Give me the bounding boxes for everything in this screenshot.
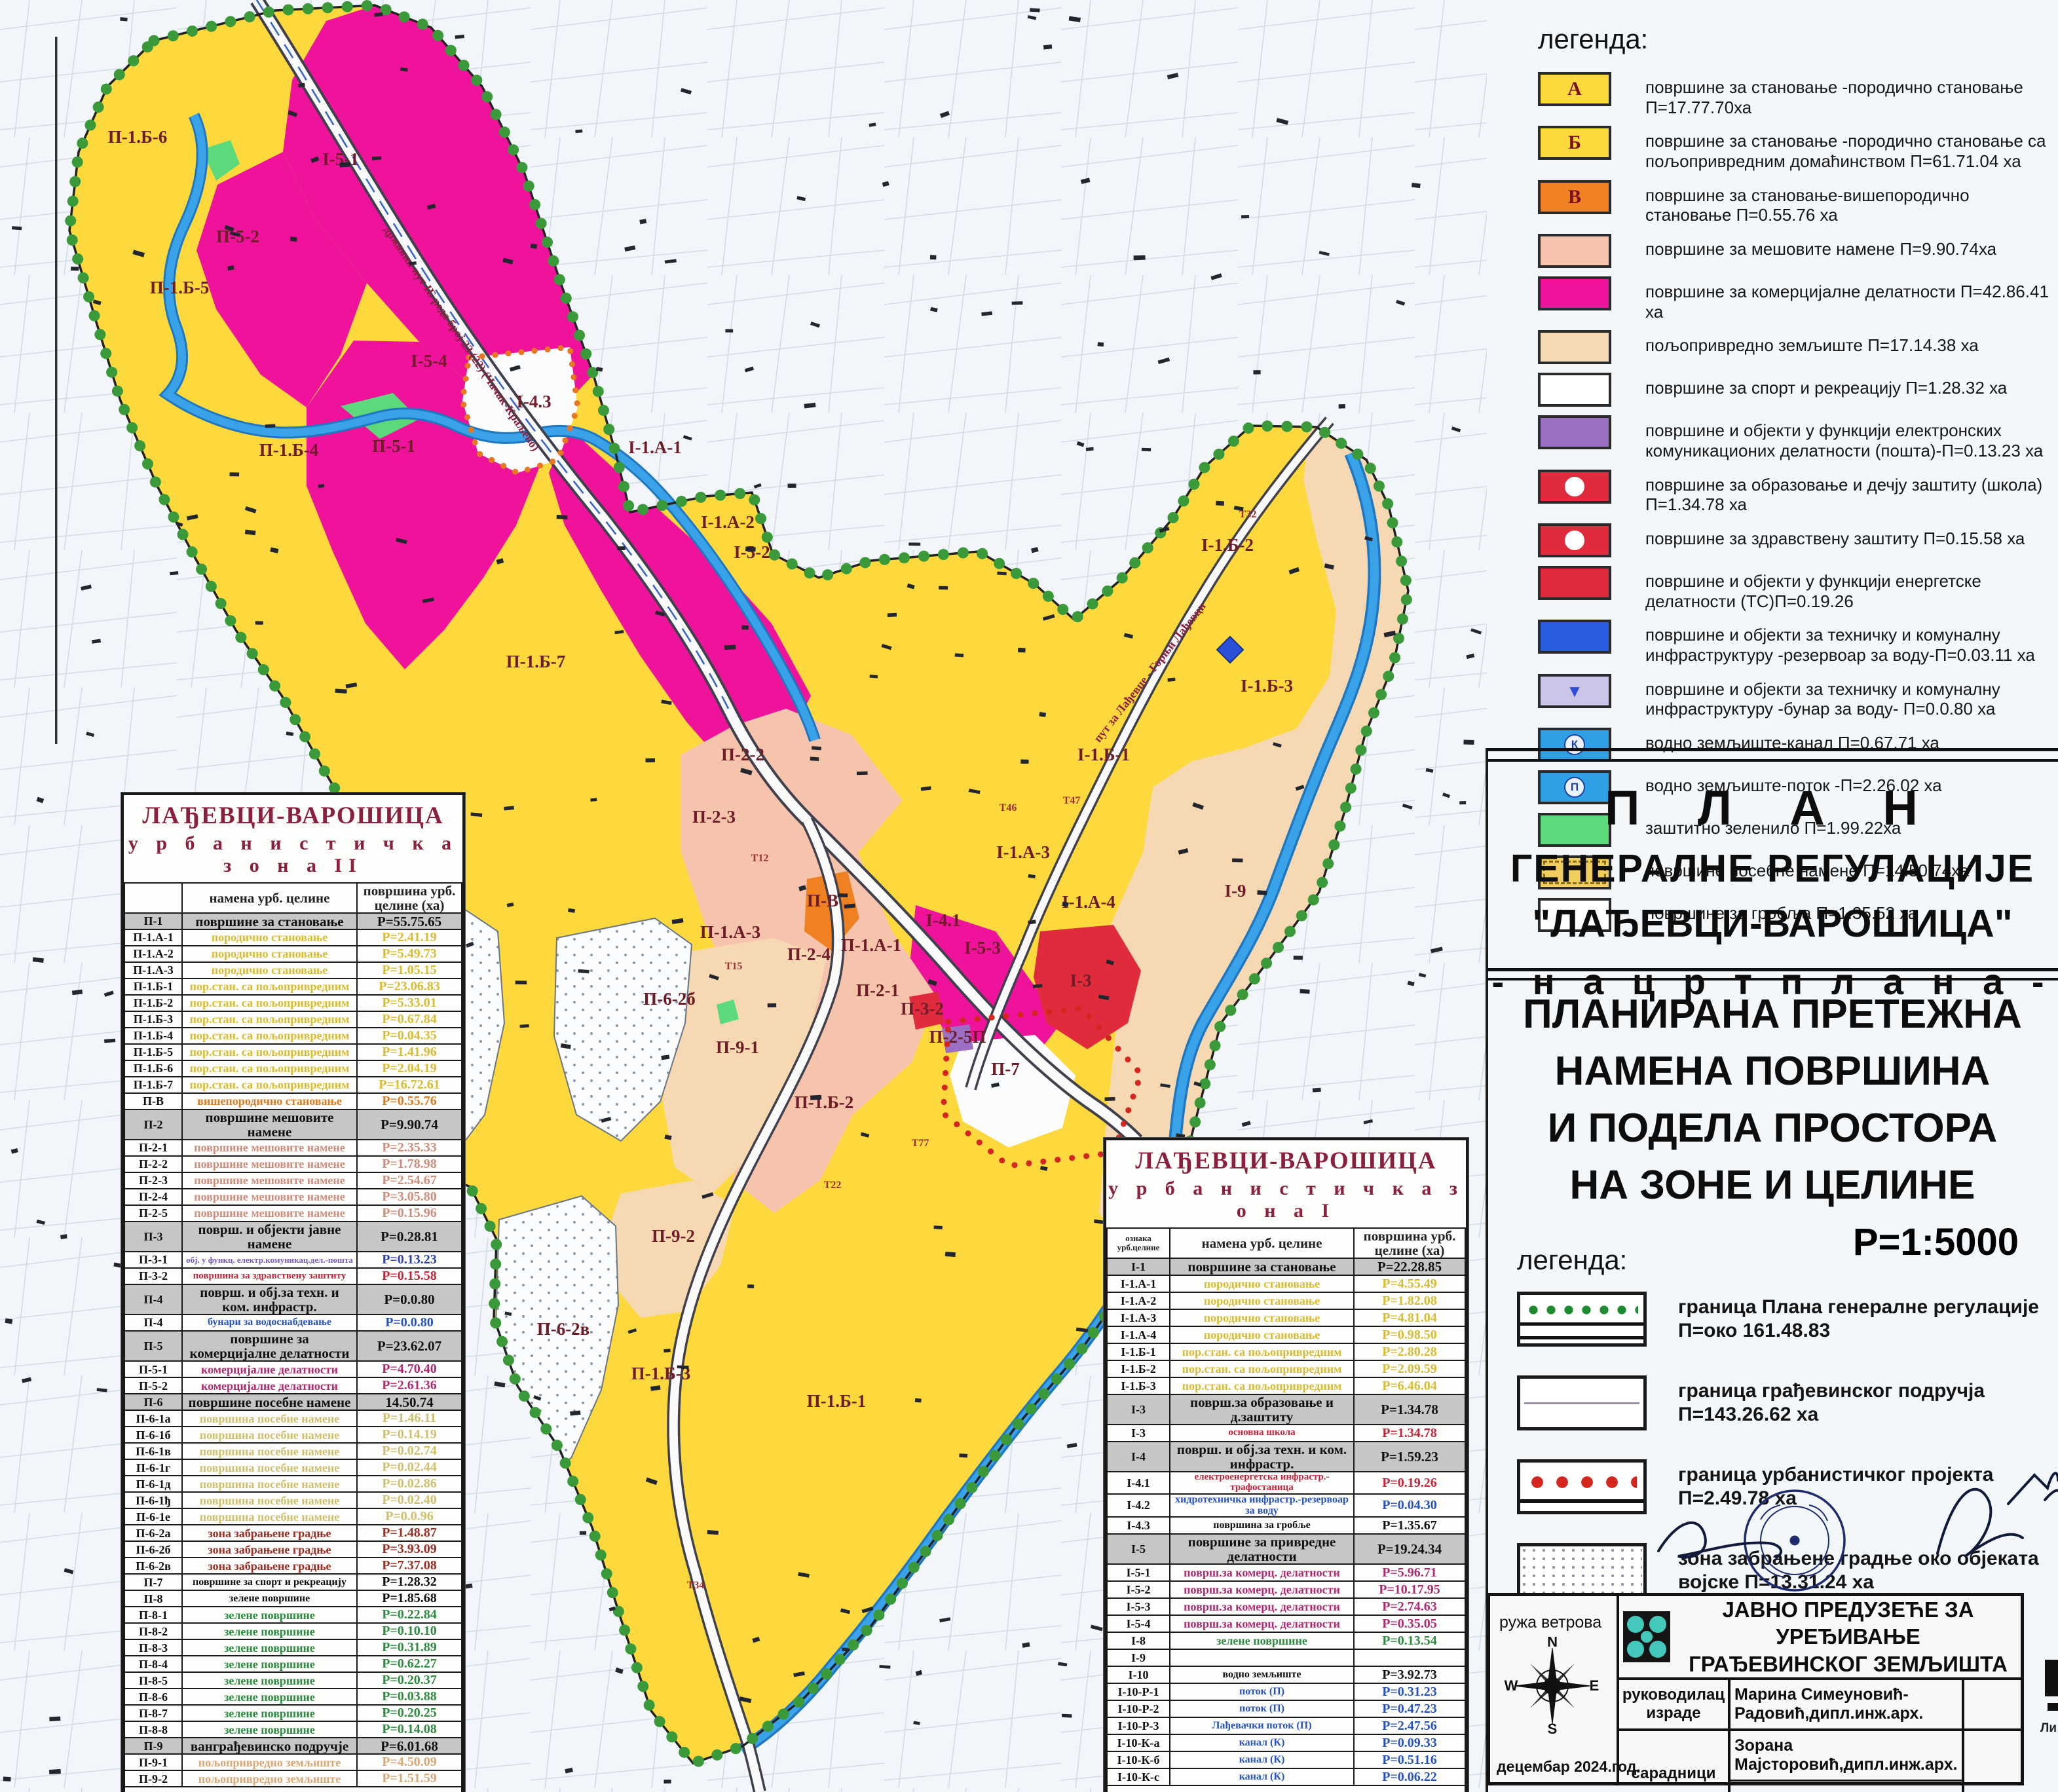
legend1-swatch: [1538, 373, 1611, 407]
building-mark: [3, 1777, 11, 1782]
subtitle-line: НА ЗОНЕ И ЦЕЛИНЕ: [1487, 1162, 2058, 1208]
zone-label-П-6-2б: П-6-2б: [643, 989, 695, 1009]
cell-zone-name: поток (П): [1170, 1700, 1354, 1717]
table-row[interactable]: I-4површ. и обј.за техн. и ком. инфрастр…: [1107, 1442, 1465, 1472]
building-mark: [229, 472, 239, 476]
building-mark: [955, 653, 964, 657]
table-row[interactable]: П-1.А-2породично становањеР=5.49.73: [124, 946, 462, 962]
credits-block: ружа ветрова N E S W: [1487, 1593, 2024, 1785]
zone2-total-row: Р=113.00.66: [124, 1787, 462, 1792]
zone2-col-name: намена урб. целине: [182, 883, 357, 913]
table-row[interactable]: П-1.Б-4пор.стан. са пољопривреднимР=0.04…: [124, 1028, 462, 1044]
building-mark: [1104, 1097, 1115, 1101]
legend1-item[interactable]: површине за комерцијалне делатности П=42…: [1538, 276, 2049, 322]
legend1-item[interactable]: ▼површине и објекти за техничку и комуна…: [1538, 674, 2049, 719]
cell-zone-id: I-4.3: [1107, 1517, 1170, 1534]
table-row[interactable]: П-5-2комерцијалне делатностиР=2.61.36: [124, 1377, 462, 1394]
cell-zone-id: П-3: [124, 1222, 182, 1252]
cell-zone-name: пор.стан. са пољопривредним: [182, 1077, 357, 1093]
table-row[interactable]: I-1.Б-3пор.стан. са пољопривреднимР=6.46…: [1107, 1377, 1465, 1394]
plan-title: П Л А Н: [1487, 780, 2058, 836]
cell-zone-id: П-9-1: [124, 1754, 182, 1770]
subtitle-block: ПЛАНИРАНА ПРЕТЕЖНАНАМЕНА ПОВРШИНАИ ПОДЕЛ…: [1487, 968, 2058, 1269]
cell-zone-id: I-10: [1107, 1666, 1170, 1683]
table-row[interactable]: П-1.Б-3пор.стан. са пољопривреднимР=0.67…: [124, 1011, 462, 1028]
table-row[interactable]: П-6-1вповршина посебне наменеР=0.02.74: [124, 1443, 462, 1459]
building-mark: [959, 1453, 967, 1457]
table-row[interactable]: I-4.3површина за гробљеР=1.35.67: [1107, 1517, 1465, 1534]
table-row[interactable]: I-1.А-3породично становањеР=4.81.04: [1107, 1309, 1465, 1326]
cell-zone-name: водно земљиште: [1170, 1666, 1354, 1683]
zone-label-П-1.Б-5: П-1.Б-5: [150, 278, 210, 297]
zone-label-I-3: I-3: [1070, 971, 1092, 990]
building-mark: [49, 1769, 61, 1774]
cell-zone-name: комерцијалне делатности: [182, 1377, 357, 1394]
legend1-item[interactable]: површине за здравствену заштиту П=0.15.5…: [1538, 523, 2049, 557]
cell-zone-area: Р=0.09.33: [1354, 1734, 1465, 1751]
cell-zone-id: П-6-1ђ: [124, 1492, 182, 1508]
table-row[interactable]: П-8-7зелене површинеР=0.20.25: [124, 1705, 462, 1721]
zone2-total: Р=113.00.66: [124, 1787, 462, 1792]
table-row[interactable]: П-8-1зелене површинеР=0.22.84: [124, 1607, 462, 1623]
building-mark: [707, 1530, 719, 1535]
cell-zone-area: Р=0.14.19: [357, 1427, 462, 1443]
building-mark: [1142, 448, 1151, 451]
cell-zone-id: П-1.Б-4: [124, 1028, 182, 1044]
legend1-item-text: површине за образовање и дечју заштиту (…: [1645, 470, 2049, 515]
legend1-item-text: површине и објекти у функцији електронск…: [1645, 415, 2049, 460]
cell-zone-name: пор.стан. са пољопривредним: [182, 979, 357, 995]
building-mark: [1012, 301, 1023, 305]
building-mark: [1043, 45, 1052, 50]
building-mark: [939, 586, 948, 590]
cell-zone-id: П-3-1: [124, 1252, 182, 1268]
table-row[interactable]: П-4бунари за водоснабдевањеР=0.0.80: [124, 1315, 462, 1331]
building-mark: [1097, 342, 1104, 346]
cell-zone-name: површине посебне намене: [182, 1394, 357, 1410]
table-row[interactable]: I-5површине за привредне делатностиР=19.…: [1107, 1534, 1465, 1564]
building-mark: [747, 1284, 754, 1288]
cell-zone-area: Р=0.55.76: [357, 1093, 462, 1110]
table-row[interactable]: П-1.Б-5пор.стан. са пољопривреднимР=1.41…: [124, 1044, 462, 1060]
table-row[interactable]: I-1.Б-1пор.стан. са пољопривреднимР=2.80…: [1107, 1343, 1465, 1360]
cell-zone-area: Р=1.05.15: [357, 962, 462, 979]
cell-zone-name: површ.за комерц. делатности: [1170, 1598, 1354, 1615]
table-row[interactable]: П-2-1површине мешовите наменеР=2.35.33: [124, 1140, 462, 1156]
plan-title-3: "ЛАЂЕВЦИ-ВАРОШИЦА": [1487, 901, 2058, 946]
cell-zone-name: зелене површине: [182, 1672, 357, 1689]
cell-zone-area: Р=3.93.09: [357, 1541, 462, 1558]
table-row[interactable]: П-9-1пољопривредно земљиштеР=4.50.09: [124, 1754, 462, 1770]
cell-zone-name: пољопривредно земљиште: [182, 1754, 357, 1770]
cell-zone-area: Р=0.47.23: [1354, 1700, 1465, 1717]
company-name: ЈАВНО ПРЕДУЗЕЋЕ ЗА УРЕЂИВАЊЕ ГРАЂЕВИНСКО…: [1675, 1596, 2021, 1677]
legend1-item-text: површине за здравствену заштиту П=0.15.5…: [1645, 523, 2025, 549]
cell-zone-id: I-5-2: [1107, 1581, 1170, 1598]
table-row[interactable]: П-2-5површине мешовите наменеР=0.15.96: [124, 1205, 462, 1222]
cell-zone-name: зелене површине: [182, 1607, 357, 1623]
zone2-col-area: површина урб. целине (ха): [357, 883, 462, 913]
legend1-item[interactable]: површине и објекти у функцији електронск…: [1538, 415, 2049, 460]
cell-zone-name: породично становање: [1170, 1275, 1354, 1292]
table-row[interactable]: П-1.Б-2пор.стан. са пољопривреднимР=5.33…: [124, 995, 462, 1011]
legend1-item-text: површине за становање-вишепородично стан…: [1645, 180, 2049, 225]
table-row[interactable]: П-6-1ђповршина посебне наменеР=0.02.40: [124, 1492, 462, 1508]
table-row[interactable]: П-8-3зелене површинеР=0.31.89: [124, 1639, 462, 1656]
building-mark: [1241, 215, 1249, 218]
cell-zone-area: Р=5.96.71: [1354, 1564, 1465, 1581]
zone-label-П-1.Б-7: П-1.Б-7: [506, 652, 566, 671]
cell-zone-name: [1170, 1649, 1354, 1666]
cell-zone-name: зона забрањене градње: [182, 1541, 357, 1558]
cell-zone-area: Р=1.41.96: [357, 1044, 462, 1060]
cell-zone-id: I-1.А-1: [1107, 1275, 1170, 1292]
legend1-item[interactable]: Бповршине за становање -породично станов…: [1538, 126, 2049, 171]
table-row[interactable]: I-8зелене површинеР=0.13.54: [1107, 1632, 1465, 1649]
building-mark: [1339, 404, 1345, 409]
table-row[interactable]: I-1.Б-2пор.стан. са пољопривреднимР=2.09…: [1107, 1360, 1465, 1377]
cell-zone-name: површине мешовите намене: [182, 1156, 357, 1172]
table-row[interactable]: I-10-К-бканал (К)Р=0.51.16: [1107, 1751, 1465, 1768]
cell-zone-name: пор.стан. са пољопривредним: [182, 1028, 357, 1044]
building-mark: [768, 1003, 777, 1007]
table-row[interactable]: П-2-3површине мешовите наменеР=2.54.67: [124, 1172, 462, 1189]
building-mark: [1216, 501, 1224, 506]
cell-zone-name: комерцијалне делатности: [182, 1361, 357, 1377]
zone-label-П-1.А-3: П-1.А-3: [700, 922, 760, 942]
table-row[interactable]: П-8-2зелене површинеР=0.10.10: [124, 1623, 462, 1639]
table-row[interactable]: П-1.А-1породично становањеР=2.41.19: [124, 929, 462, 946]
cell-zone-name: канал (К): [1170, 1768, 1354, 1785]
legend2-item[interactable]: граница грађевинског подручја П=143.26.6…: [1517, 1375, 2054, 1430]
building-mark: [664, 1780, 671, 1783]
cell-zone-id: I-3: [1107, 1394, 1170, 1425]
cell-zone-name: површине мешовите намене: [182, 1140, 357, 1156]
cell-zone-name: хидротехничка инфрастр.-резервоар за вод…: [1170, 1494, 1354, 1518]
transformer-label-Т34: Т34: [687, 1580, 705, 1591]
legend1-item[interactable]: површине за образовање и дечју заштиту (…: [1538, 470, 2049, 515]
cell-zone-name: породично становање: [182, 962, 357, 979]
cell-zone-area: 14.50.74: [357, 1394, 462, 1410]
cell-zone-area: Р=1.46.11: [357, 1410, 462, 1427]
cell-zone-area: Р=2.35.33: [357, 1140, 462, 1156]
table-row[interactable]: П-3-2површина за здравствену заштитуР=0.…: [124, 1268, 462, 1284]
legend1-swatch: В: [1538, 180, 1611, 214]
table-row[interactable]: П-6-2бзона забрањене градњеР=3.93.09: [124, 1541, 462, 1558]
cell-zone-id: I-4.1: [1107, 1472, 1170, 1494]
zone-label-П-2-3: П-2-3: [692, 807, 736, 827]
table-row[interactable]: I-10-Р-1поток (П)Р=0.31.23: [1107, 1683, 1465, 1700]
building-mark: [339, 162, 350, 168]
table-row[interactable]: I-1.А-4породично становањеР=0.98.50: [1107, 1326, 1465, 1343]
spare-cell: [1964, 1680, 2021, 1728]
zone-label-П-В: П-В: [807, 891, 838, 910]
cell-zone-name: површ.за комерц. делатности: [1170, 1581, 1354, 1598]
cell-zone-area: Р=2.09.59: [1354, 1360, 1465, 1377]
building-mark: [664, 1349, 671, 1353]
cell-zone-id: I-8: [1107, 1632, 1170, 1649]
zone1-total: Р=59.66.17: [1107, 1785, 1465, 1792]
building-mark: [515, 980, 527, 984]
credits-role-row: руководилац израдеМарина Симеуновић-Радо…: [1619, 1680, 2021, 1731]
table-row[interactable]: I-5-4површ.за комерц. делатностиР=0.35.0…: [1107, 1615, 1465, 1632]
table-row[interactable]: П-5-1комерцијалне делатностиР=4.70.40: [124, 1361, 462, 1377]
table-row[interactable]: П-6-2азона забрањене градњеР=1.48.87: [124, 1525, 462, 1541]
table-row[interactable]: I-4.1електроенергетска инфрастр.-трафост…: [1107, 1472, 1465, 1494]
cell-zone-name: зелене површине: [182, 1721, 357, 1738]
cell-zone-name: зелене површине: [182, 1656, 357, 1672]
cell-zone-area: Р=0.20.37: [357, 1672, 462, 1689]
cell-zone-id: П-6-1б: [124, 1427, 182, 1443]
cell-zone-name: зелене површине: [182, 1689, 357, 1705]
compass-w: W: [1505, 1677, 1518, 1694]
role-names: Зорана Мајсторовић,дипл.инж.арх.: [1731, 1731, 1964, 1792]
cell-zone-name: површине мешовите намене: [182, 1189, 357, 1205]
legend1-item-text: површине и објекти у функцији енергетске…: [1645, 566, 2049, 611]
cell-zone-area: Р=0.15.58: [357, 1268, 462, 1284]
cell-zone-id: П-3-2: [124, 1268, 182, 1284]
cell-zone-id: П-9-2: [124, 1770, 182, 1787]
zone-label-I-1.Б-3: I-1.Б-3: [1241, 676, 1293, 696]
legend1-item[interactable]: површине и објекти у функцији енергетске…: [1538, 566, 2049, 611]
zone2-header-row: намена урб. целине површина урб. целине …: [124, 883, 462, 913]
zone-label-П-2-1: П-2-1: [856, 980, 899, 1000]
cell-zone-area: Р=5.49.73: [357, 946, 462, 962]
cell-zone-name: површ. и обј.за техн. и ком. инфрастр.: [182, 1284, 357, 1315]
building-mark: [810, 1095, 821, 1100]
cell-zone-id: П-5-1: [124, 1361, 182, 1377]
table-row[interactable]: I-1површине за становањеР=22.28.85: [1107, 1258, 1465, 1275]
table-row[interactable]: I-10-К-аканал (К)Р=0.09.33: [1107, 1734, 1465, 1751]
zone-label-I-5-2: I-5-2: [734, 542, 770, 562]
table-row[interactable]: I-5-1површ.за комерц. делатностиР=5.96.7…: [1107, 1564, 1465, 1581]
double-rule: [1487, 971, 2058, 980]
cell-zone-name: површине за спорт и рекреацију: [182, 1574, 357, 1590]
cell-zone-name: површина посебне намене: [182, 1492, 357, 1508]
signatures-and-stamp: [1487, 1461, 2058, 1611]
building-mark: [71, 267, 79, 271]
table-row[interactable]: П-Ввишепородично становањеР=0.55.76: [124, 1093, 462, 1110]
zone2-title: ЛАЂЕВЦИ-ВАРОШИЦА: [124, 795, 462, 830]
table-row[interactable]: I-3површ.за образовање и д.заштитуР=1.34…: [1107, 1394, 1465, 1425]
table-row[interactable]: I-10-Р-3Лађевачки поток (П)Р=2.47.56: [1107, 1717, 1465, 1734]
building-mark: [915, 1398, 922, 1403]
legend1-swatch: [1538, 234, 1611, 268]
cell-zone-name: површина за гробље: [1170, 1517, 1354, 1534]
table-row[interactable]: П-1.А-3породично становањеР=1.05.15: [124, 962, 462, 979]
table-row[interactable]: П-5површине за комерцијалне делатностиР=…: [124, 1331, 462, 1361]
table-row[interactable]: П-2-2површине мешовите наменеР=1.78.98: [124, 1156, 462, 1172]
cell-zone-name: зелене површине: [1170, 1632, 1354, 1649]
table-row[interactable]: П-1.Б-7пор.стан. са пољопривреднимР=16.7…: [124, 1077, 462, 1093]
zone2-subtitle: у р б а н и с т и ч к а з о н а II: [124, 830, 462, 882]
cell-zone-id: I-3: [1107, 1425, 1170, 1442]
building-mark: [1020, 760, 1028, 764]
cell-zone-area: Р=4.55.49: [1354, 1275, 1465, 1292]
table-row[interactable]: П-8-8зелене површинеР=0.14.08: [124, 1721, 462, 1738]
cell-zone-area: Р=2.41.19: [357, 929, 462, 946]
building-mark: [930, 255, 937, 259]
table-row[interactable]: I-1.А-2породично становањеР=1.82.08: [1107, 1292, 1465, 1309]
cell-zone-area: Р=3.05.80: [357, 1189, 462, 1205]
table-row[interactable]: П-4површ. и обј.за техн. и ком. инфрастр…: [124, 1284, 462, 1315]
cell-zone-id: П-6-1г: [124, 1459, 182, 1476]
cell-zone-id: П-1.Б-6: [124, 1060, 182, 1077]
table-row[interactable]: I-10-Р-2поток (П)Р=0.47.23: [1107, 1700, 1465, 1717]
legend1-item[interactable]: Вповршине за становање-вишепородично ста…: [1538, 180, 2049, 225]
legend1-item[interactable]: Аповршине за становање -породично станов…: [1538, 72, 2049, 117]
zone-label-П-1.Б-4: П-1.Б-4: [259, 440, 319, 460]
table-row[interactable]: П-8-6зелене површинеР=0.03.88: [124, 1689, 462, 1705]
cell-zone-id: П-1.Б-2: [124, 995, 182, 1011]
cell-zone-area: Р=0.51.16: [1354, 1751, 1465, 1768]
person-name-empty: [1731, 1782, 1962, 1792]
table-row[interactable]: I-10водно земљиштеР=3.92.73: [1107, 1666, 1465, 1683]
cell-zone-area: Р=0.15.96: [357, 1205, 462, 1222]
building-mark: [1018, 648, 1026, 652]
building-mark: [255, 621, 263, 624]
cell-zone-id: П-1.А-1: [124, 929, 182, 946]
swatch-letter: В: [1568, 186, 1581, 208]
table-row[interactable]: П-6-2взона забрањене градњеР=7.37.08: [124, 1558, 462, 1574]
cell-zone-name: површина посебне намене: [182, 1476, 357, 1492]
building-mark: [120, 17, 128, 21]
table-row[interactable]: I-10-К-сканал (К)Р=0.06.22: [1107, 1768, 1465, 1785]
table-row[interactable]: П-6-1аповршина посебне наменеР=1.46.11: [124, 1410, 462, 1427]
cell-zone-area: Р=3.92.73: [1354, 1666, 1465, 1683]
cell-zone-id: П-8-6: [124, 1689, 182, 1705]
legend1-swatch: [1538, 523, 1611, 557]
spare-cell: [1964, 1731, 2021, 1792]
table-row[interactable]: П-3-1обј. у функц. електр.комуникац.дел.…: [124, 1252, 462, 1268]
building-mark: [49, 1717, 60, 1722]
subtitle-line: ПЛАНИРАНА ПРЕТЕЖНА: [1487, 991, 2058, 1037]
legend1-item-text: пољопривредно земљиште П=17.14.38 ха: [1645, 330, 1979, 356]
table-row[interactable]: П-1.Б-1пор.стан. са пољопривреднимР=23.0…: [124, 979, 462, 995]
company-name-line1: ЈАВНО ПРЕДУЗЕЋЕ ЗА УРЕЂИВАЊЕ: [1675, 1596, 2021, 1651]
table-row[interactable]: П-6-1дповршина посебне наменеР=0.02.86: [124, 1476, 462, 1492]
table-row[interactable]: П-9-2пољопривредно земљиштеР=1.51.59: [124, 1770, 462, 1787]
table-row[interactable]: П-2-4површине мешовите наменеР=3.05.80: [124, 1189, 462, 1205]
table-row[interactable]: I-5-3површ.за комерц. делатностиР=2.74.6…: [1107, 1598, 1465, 1615]
legend2-item-text: граница грађевинског подручја П=143.26.6…: [1678, 1379, 2054, 1427]
zone-label-П-9-2: П-9-2: [652, 1226, 695, 1246]
cell-zone-id: I-1.Б-3: [1107, 1377, 1170, 1394]
subtitle-line: НАМЕНА ПОВРШИНА: [1487, 1048, 2058, 1094]
zone1-col-id: ознака урб.целине: [1107, 1228, 1170, 1258]
legend2-item[interactable]: граница Плана генералне регулације П=око…: [1517, 1292, 2054, 1347]
table-row[interactable]: I-3основна школаР=1.34.78: [1107, 1425, 1465, 1442]
legend1-swatch: [1538, 415, 1611, 449]
cell-zone-name: ванграђевинско подручје: [182, 1738, 357, 1754]
cell-zone-id: I-10-К-б: [1107, 1751, 1170, 1768]
building-mark: [810, 756, 819, 761]
table-row[interactable]: П-1површине за становањеР=55.75.65: [124, 913, 462, 929]
building-mark: [888, 613, 897, 617]
cell-zone-name: канал (К): [1170, 1734, 1354, 1751]
double-line-symbol: [1520, 1322, 1643, 1339]
legend1-item[interactable]: површине за спорт и рекреацију П=1.28.32…: [1538, 373, 2049, 407]
cell-zone-area: Р=1.48.87: [357, 1525, 462, 1541]
table-row[interactable]: П-2површине мешовите наменеР=9.90.74: [124, 1110, 462, 1140]
table-row[interactable]: П-1.Б-6пор.стан. са пољопривреднимР=2.04…: [124, 1060, 462, 1077]
table-row[interactable]: П-6-1гповршина посебне наменеР=0.02.44: [124, 1459, 462, 1476]
zone-label-П-7: П-7: [991, 1059, 1020, 1079]
zone-label-П-1.Б-1: П-1.Б-1: [807, 1391, 867, 1411]
table-row[interactable]: I-1.А-1породично становањеР=4.55.49: [1107, 1275, 1465, 1292]
cell-zone-name: пор.стан. са пољопривредним: [182, 1044, 357, 1060]
table-row[interactable]: П-6-1еповршина посебне наменеР=0.0.96: [124, 1508, 462, 1525]
cell-zone-area: Р=7.37.08: [357, 1558, 462, 1574]
legend1-title: легенда:: [1538, 24, 2049, 55]
table-row[interactable]: П-6-1бповршина посебне наменеР=0.14.19: [124, 1427, 462, 1443]
zone2-table-title: ЛАЂЕВЦИ-ВАРОШИЦА у р б а н и с т и ч к а…: [124, 795, 462, 882]
cell-zone-id: П-5-2: [124, 1377, 182, 1394]
cell-zone-name: породично становање: [1170, 1326, 1354, 1343]
cell-zone-name: пор.стан. са пољопривредним: [1170, 1343, 1354, 1360]
table-row[interactable]: I-4.2хидротехничка инфрастр.-резервоар з…: [1107, 1494, 1465, 1518]
cell-zone-name: породично становање: [1170, 1292, 1354, 1309]
table-row[interactable]: П-8-5зелене површинеР=0.20.37: [124, 1672, 462, 1689]
water-well-icon: ▼: [1566, 682, 1583, 700]
cell-zone-id: П-6-2б: [124, 1541, 182, 1558]
cell-zone-id: I-10-Р-3: [1107, 1717, 1170, 1734]
table-row[interactable]: П-7површине за спорт и рекреацијуР=1.28.…: [124, 1574, 462, 1590]
cell-zone-id: I-4.2: [1107, 1494, 1170, 1518]
legend1-item[interactable]: површине за мешовите намене П=9.90.74ха: [1538, 234, 2049, 268]
building-mark: [1294, 956, 1303, 960]
cell-zone-id: П-2-5: [124, 1205, 182, 1222]
cell-zone-area: Р=23.06.83: [357, 979, 462, 995]
legend1-item[interactable]: површине и објекти за техничку и комунал…: [1538, 620, 2049, 665]
building-mark: [1463, 739, 1474, 745]
table-row[interactable]: П-9ванграђевинско подручјеР=6.01.68: [124, 1738, 462, 1754]
building-mark: [1300, 989, 1309, 994]
cell-zone-area: Р=0.0.80: [357, 1315, 462, 1331]
cell-zone-name: површ.за образовање и д.заштиту: [1170, 1394, 1354, 1425]
table-row[interactable]: I-9: [1107, 1649, 1465, 1666]
building-mark: [557, 515, 568, 519]
zone1-col-area: површина урб. целине (ха): [1354, 1228, 1465, 1258]
swatch-letter: А: [1567, 78, 1582, 100]
cell-zone-id: П-В: [124, 1093, 182, 1110]
table-row[interactable]: П-6површине посебне намене14.50.74: [124, 1394, 462, 1410]
company-logo: [1623, 1611, 1670, 1662]
cell-zone-area: Р=4.70.40: [357, 1361, 462, 1377]
cell-zone-area: Р=0.03.88: [357, 1689, 462, 1705]
cell-zone-id: П-1: [124, 913, 182, 929]
legend2-swatch: [1517, 1375, 1647, 1430]
cell-zone-id: П-9: [124, 1738, 182, 1754]
sheet-frame-left-line: [55, 37, 58, 744]
table-row[interactable]: I-5-2површ.за комерц. делатностиР=10.17.…: [1107, 1581, 1465, 1598]
cell-zone-area: Р=23.62.07: [357, 1331, 462, 1361]
table-row[interactable]: П-3површ. и објекти јавне наменеР=0.28.8…: [124, 1222, 462, 1252]
cell-zone-area: Р=2.04.19: [357, 1060, 462, 1077]
building-mark: [997, 572, 1006, 576]
cell-zone-name: пор.стан. са пољопривредним: [1170, 1377, 1354, 1394]
cell-zone-area: Р=2.54.67: [357, 1172, 462, 1189]
table-row[interactable]: П-8-4зелене површинеР=0.62.27: [124, 1656, 462, 1672]
zone-label-I-1.Б-2: I-1.Б-2: [1201, 535, 1254, 555]
cell-zone-area: Р=1.51.59: [357, 1770, 462, 1787]
subtitle-line: И ПОДЕЛА ПРОСТОРА: [1487, 1105, 2058, 1151]
cell-zone-area: Р=9.90.74: [357, 1110, 462, 1140]
legend1-item[interactable]: пољопривредно земљиште П=17.14.38 ха: [1538, 330, 2049, 364]
cell-zone-id: П-2-4: [124, 1189, 182, 1205]
table-row[interactable]: П-8зелене површинеР=1.85.68: [124, 1590, 462, 1607]
cell-zone-id: П-4: [124, 1284, 182, 1315]
